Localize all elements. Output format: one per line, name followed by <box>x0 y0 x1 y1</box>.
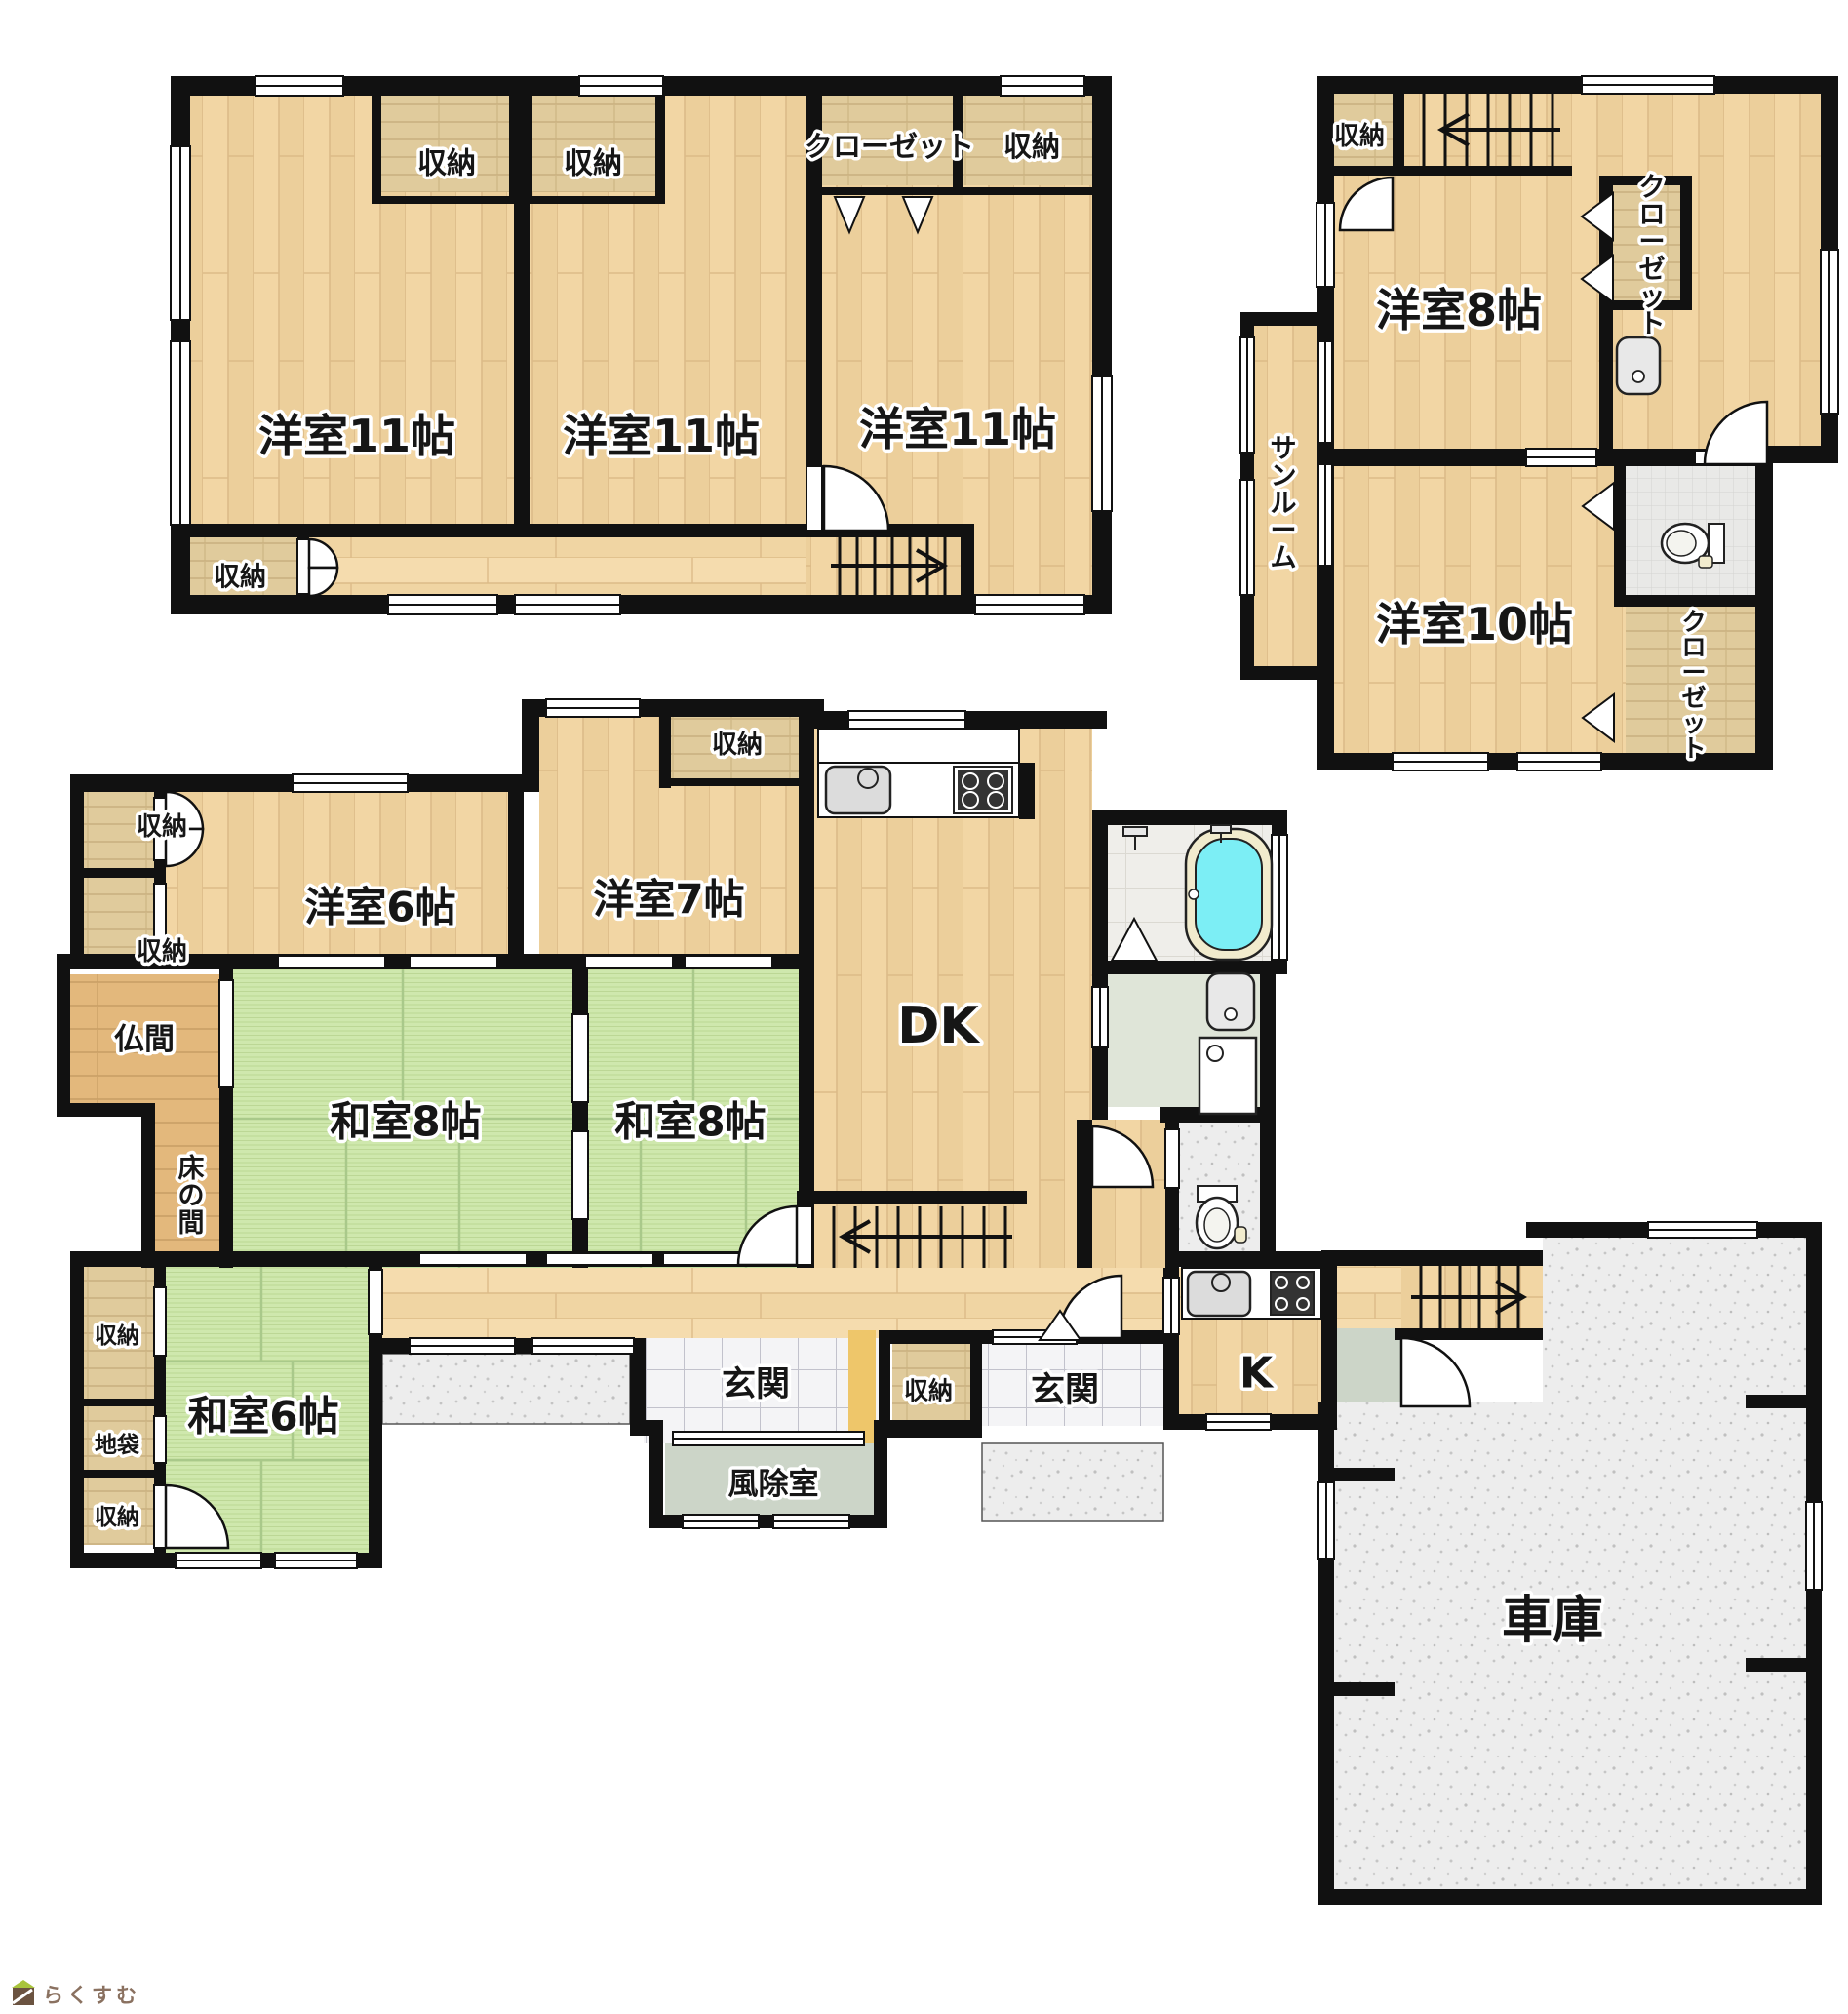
label-f2e-room-2: 洋室10帖 <box>1376 598 1573 651</box>
label-f1-closet-w1: 収納 <box>137 811 187 842</box>
bathtub-icon <box>1186 829 1272 960</box>
label-f1-genkan-2: 玄関 <box>1031 1371 1099 1410</box>
label-f2e-closet-3: クローゼット <box>1681 608 1706 763</box>
label-f1-fujoshitsu: 風除室 <box>728 1467 819 1502</box>
label-f1-room-7: 洋室7帖 <box>593 876 744 924</box>
label-f1-washitsu8-2: 和室8帖 <box>614 1098 766 1146</box>
label-f2e-sunroom: サンルーム <box>1271 433 1297 573</box>
label-f1-k: K <box>1239 1349 1275 1399</box>
label-f2w-closet-2: 収納 <box>564 147 622 181</box>
label-f1-dk: DK <box>897 997 980 1055</box>
logo-house-icon <box>12 1980 35 2005</box>
kitchen-sink-icon <box>826 767 890 813</box>
label-f1-closet-s1: 収納 <box>95 1323 139 1349</box>
door-garage-landing <box>1401 1338 1470 1406</box>
label-f2w-closet-3: クローゼット <box>805 130 974 163</box>
label-f1-closet-7: 収納 <box>712 730 763 760</box>
label-f2w-room-1: 洋室11帖 <box>258 410 455 462</box>
washing-machine-icon <box>1199 1038 1256 1114</box>
label-garage: 車庫 <box>1502 1592 1603 1650</box>
floor-plan-canvas: 収納収納クローゼット収納洋室11帖洋室11帖洋室11帖収納収納クローゼット洋室8… <box>0 0 1848 2014</box>
kitchen-counter-dk <box>818 729 1035 819</box>
label-f2e-room-1: 洋室8帖 <box>1376 284 1542 336</box>
label-f1-genkan-1: 玄関 <box>722 1365 790 1404</box>
washbasin-1f-icon <box>1207 973 1254 1030</box>
washroom-fixtures <box>1199 973 1256 1114</box>
label-f1-washitsu8-1: 和室8帖 <box>330 1098 481 1146</box>
label-f2w-room-2: 洋室11帖 <box>563 410 760 462</box>
label-f2w-room-3: 洋室11帖 <box>859 403 1056 455</box>
label-f1-washitsu6: 和室6帖 <box>187 1393 338 1441</box>
k-sink-icon <box>1188 1272 1250 1316</box>
label-f2e-closet-1: 収納 <box>1334 121 1385 151</box>
label-f1-closet-w2: 収納 <box>137 936 187 967</box>
washbasin-2f-icon <box>1617 337 1660 394</box>
label-f2w-closet-1: 収納 <box>417 147 476 181</box>
label-f1-room-6: 洋室6帖 <box>304 884 455 931</box>
label-f2e-closet-2: クローゼット <box>1639 172 1666 338</box>
label-f1-genkan-closet: 収納 <box>904 1377 953 1405</box>
floor-plan-page: 収納収納クローゼット収納洋室11帖洋室11帖洋室11帖収納収納クローゼット洋室8… <box>0 0 1848 2014</box>
site-logo: らくすむ <box>12 1980 140 2007</box>
label-f1-closet-s2: 収納 <box>95 1504 139 1530</box>
label-f1-jibukuro: 地袋 <box>95 1432 140 1458</box>
kitchen-k-fixtures <box>1182 1268 1321 1319</box>
label-f2w-closet-4: 収納 <box>1003 130 1060 163</box>
gas-stove-icon <box>954 767 1012 813</box>
label-f1-butsuma: 仏間 <box>114 1022 175 1057</box>
logo-text: らくすむ <box>43 1984 140 2007</box>
k-stove-icon <box>1271 1272 1314 1315</box>
label-f1-tokonoma: 床の間 <box>178 1152 205 1238</box>
label-f2w-hall-closet: 収納 <box>214 562 266 593</box>
